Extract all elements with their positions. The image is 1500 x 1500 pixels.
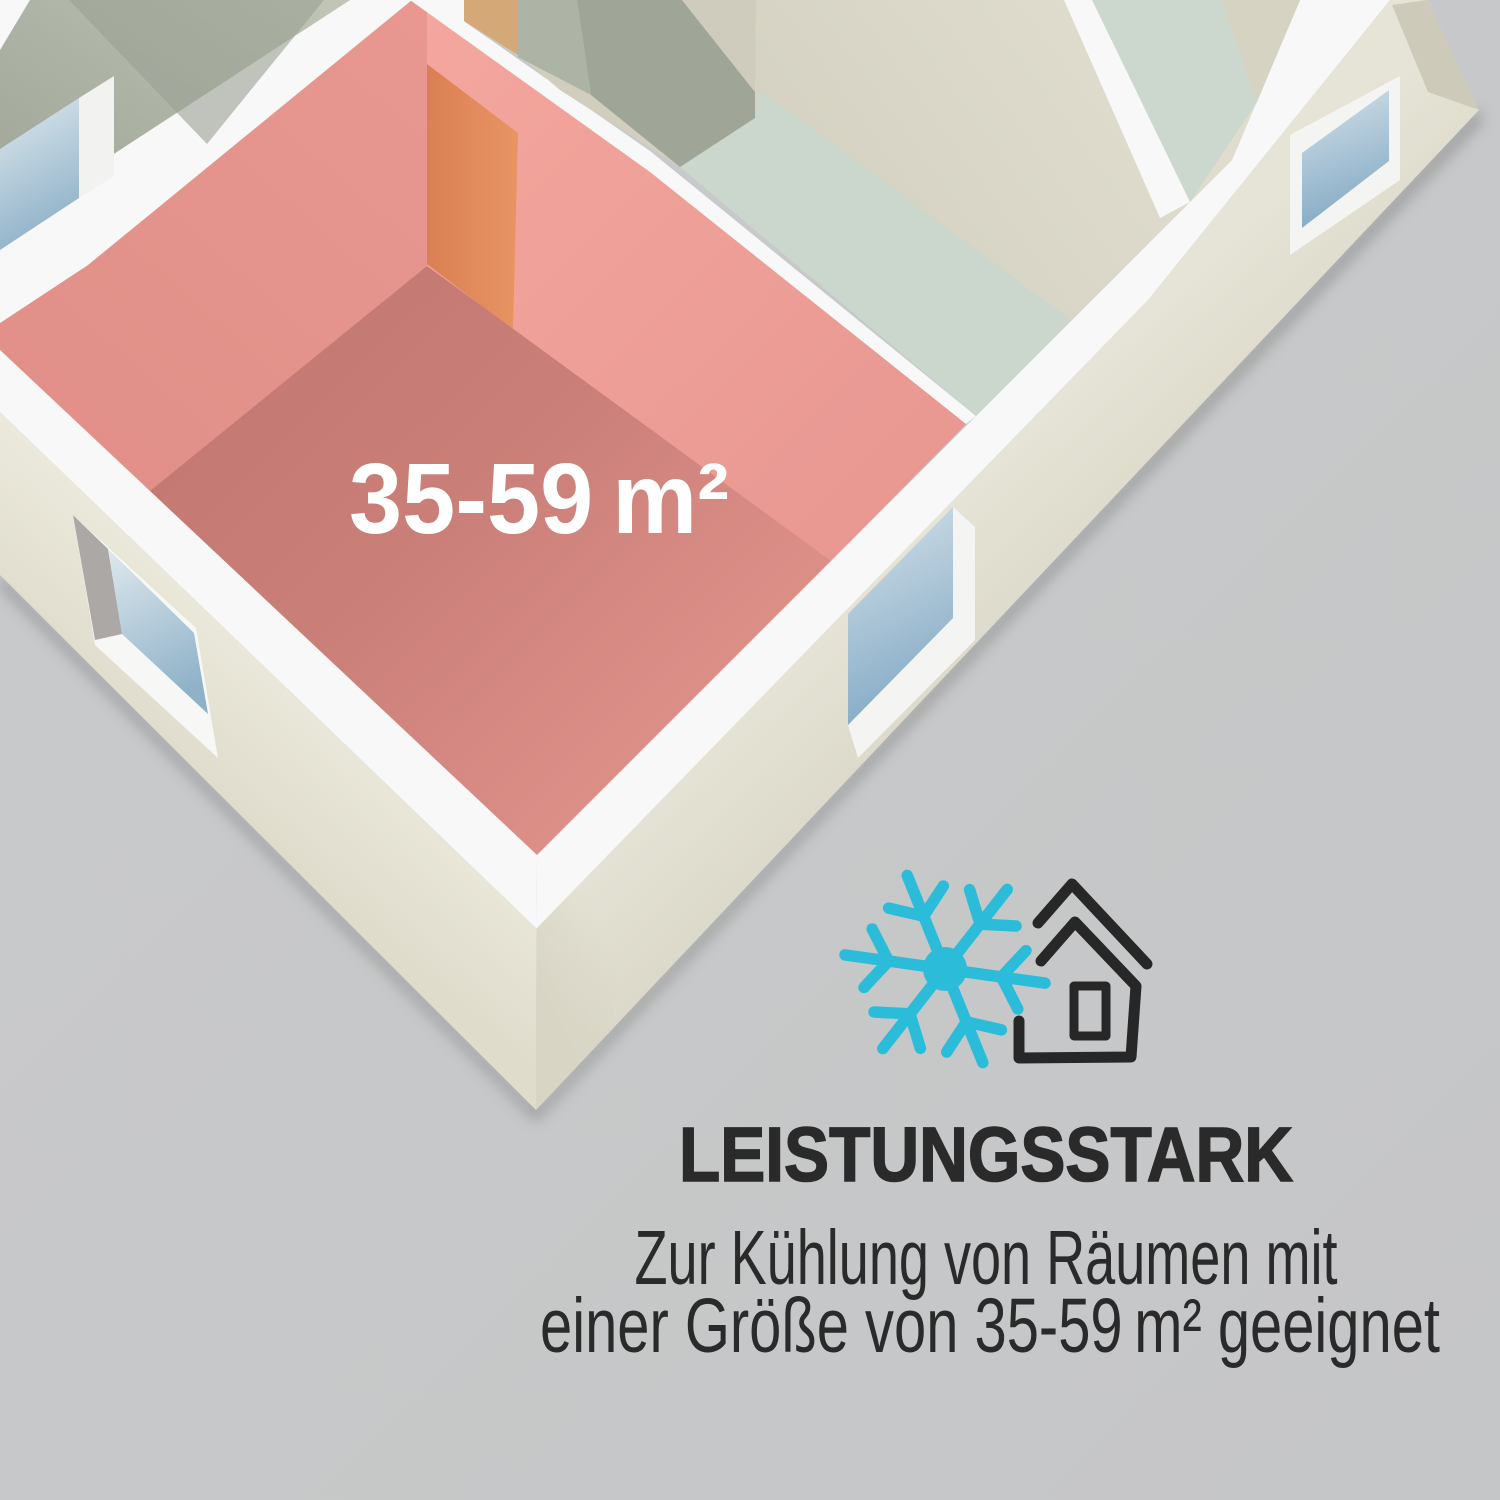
svg-text:35-59 m²: 35-59 m² [349,443,729,555]
svg-text:LEISTUNGSSTARK: LEISTUNGSSTARK [679,1112,1293,1198]
svg-text:einer Größe von 35-59 m² geeig: einer Größe von 35-59 m² geeignet [540,1283,1440,1369]
